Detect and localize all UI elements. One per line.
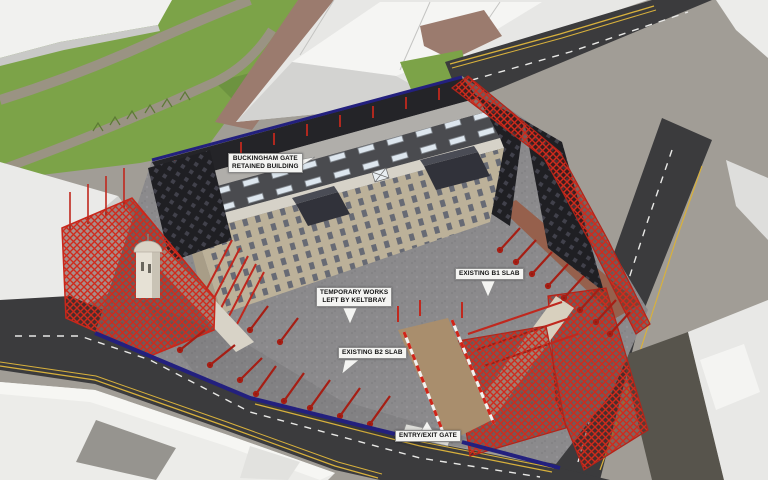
annotation-line: RETAINED BUILDING <box>232 163 299 171</box>
annotation-line: BUCKINGHAM GATE <box>232 155 299 163</box>
scene-canvas <box>0 0 768 480</box>
annotation-existing-b2-slab: EXISTING B2 SLAB <box>338 347 407 359</box>
construction-site-3d-visualisation: BUCKINGHAM GATE RETAINED BUILDING TEMPOR… <box>0 0 768 480</box>
annotation-buckingham-gate-retained-building: BUCKINGHAM GATE RETAINED BUILDING <box>228 153 303 173</box>
annotation-line: EXISTING B1 SLAB <box>459 270 520 278</box>
annotation-line: TEMPORARY WORKS <box>320 289 388 297</box>
annotation-temporary-works: TEMPORARY WORKS LEFT BY KELTBRAY <box>316 287 392 307</box>
turret-window-2 <box>148 264 151 273</box>
turret-window-1 <box>141 262 144 271</box>
annotation-entry-exit-gate: ENTRY/EXIT GATE <box>395 430 461 442</box>
turret-shade <box>152 252 160 298</box>
annotation-existing-b1-slab: EXISTING B1 SLAB <box>455 268 524 280</box>
annotation-line: EXISTING B2 SLAB <box>342 349 403 357</box>
annotation-line: ENTRY/EXIT GATE <box>399 432 457 440</box>
annotation-line: LEFT BY KELTBRAY <box>320 297 388 305</box>
